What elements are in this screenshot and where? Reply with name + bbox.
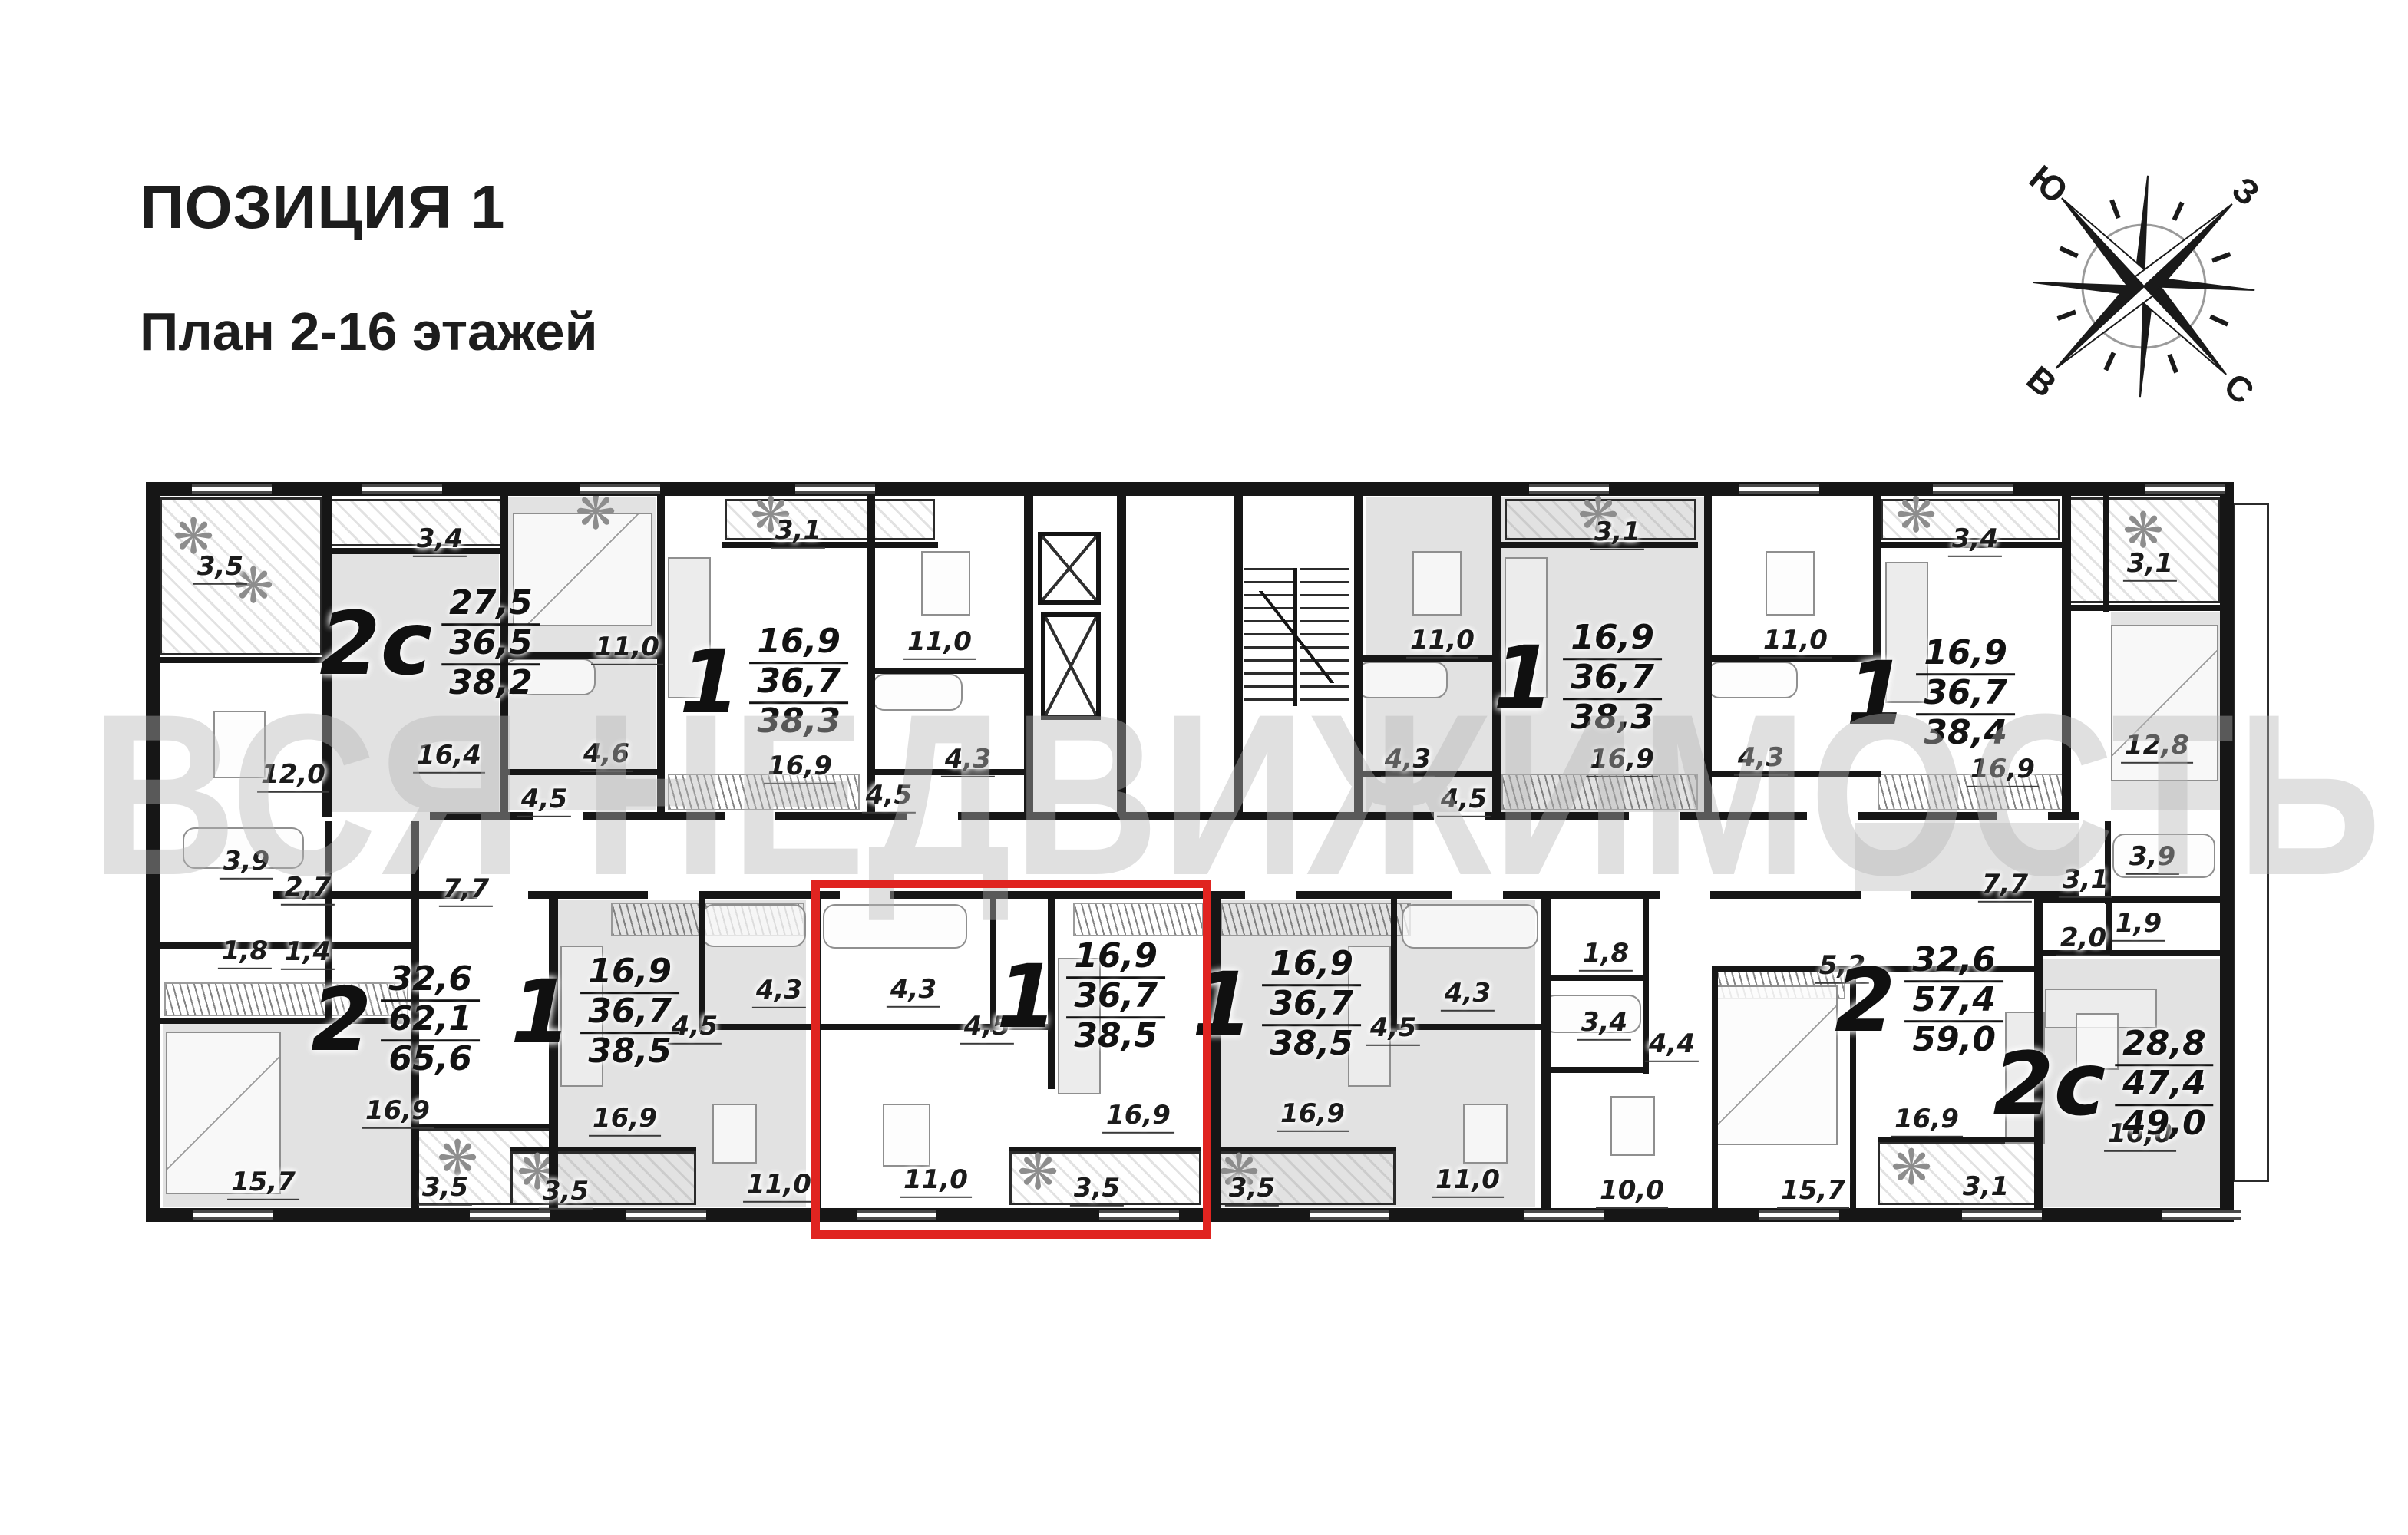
apartment-area-value: 38,3 xyxy=(1563,701,1662,738)
window-icon xyxy=(1962,1210,2042,1220)
wall xyxy=(1704,771,1881,777)
apartment-label: 116,936,738,5 xyxy=(510,954,679,1072)
room-area-label: 1,8 xyxy=(1579,938,1633,972)
apartment-label: 2с28,847,449,0 xyxy=(1993,1026,2213,1144)
wall xyxy=(722,542,938,548)
table-icon xyxy=(1412,551,1462,616)
room-area-label: 12,0 xyxy=(257,759,329,793)
elevator-shaft-icon xyxy=(1038,532,1101,605)
table-icon xyxy=(1463,1104,1508,1164)
apartment-area-value: 32,6 xyxy=(1904,942,2003,982)
table-icon xyxy=(921,551,970,616)
room-area-label: 4,5 xyxy=(1437,784,1491,817)
wardrobe-hatch xyxy=(1221,903,1411,936)
room-area-label: 2,7 xyxy=(281,872,335,906)
apartment-area-value: 62,1 xyxy=(381,1002,480,1041)
room-area-label: 11,0 xyxy=(1432,1164,1504,1198)
room-area-label: 3,5 xyxy=(539,1176,593,1210)
wall xyxy=(867,668,1033,674)
room-area-label: 16,9 xyxy=(362,1095,434,1129)
floor-plan-page: ПОЗИЦИЯ 1 План 2-16 этажей Ю xyxy=(0,0,2408,1535)
room-area-label: 4,5 xyxy=(862,780,916,814)
window-icon xyxy=(795,484,875,494)
apartment-type: 2 xyxy=(1835,965,1895,1039)
apartment-area-value: 47,4 xyxy=(2115,1066,2214,1106)
apartment-areas: 16,936,738,3 xyxy=(749,624,848,742)
apartment-label: 116,936,738,4 xyxy=(1846,635,2015,754)
door-opening xyxy=(1997,812,2048,820)
room-area-label: 4,3 xyxy=(1734,742,1788,776)
room-area-label: 16,9 xyxy=(1277,1098,1349,1132)
room-area-label: 10,0 xyxy=(1596,1175,1668,1209)
room-area-label: 16,9 xyxy=(589,1103,661,1137)
apartment-type: 1 xyxy=(1846,658,1907,732)
window-icon xyxy=(2145,484,2225,494)
apartment-type: 2с xyxy=(1993,1048,2106,1123)
room-area-label: 16,9 xyxy=(1891,1104,1963,1137)
bathtub-icon xyxy=(1357,662,1448,698)
apartment-area-value: 16,9 xyxy=(1563,620,1662,660)
wall xyxy=(510,1147,696,1151)
apartment-area-value: 38,5 xyxy=(1262,1027,1361,1065)
room-area-label: 16,9 xyxy=(1967,754,2039,787)
door-opening xyxy=(1629,812,1680,820)
wall xyxy=(1541,975,1649,981)
apartment-area-value: 27,5 xyxy=(441,586,540,626)
room-area-label: 11,0 xyxy=(903,626,976,660)
door-opening xyxy=(648,891,699,899)
door-opening xyxy=(1452,891,1503,899)
wall xyxy=(2062,605,2228,611)
window-icon xyxy=(1524,1210,1604,1220)
bathtub-icon xyxy=(872,674,963,711)
room-area-label: 4,5 xyxy=(1366,1012,1420,1046)
wall xyxy=(146,482,2234,496)
plant-icon: ❋ xyxy=(1891,1140,1932,1197)
room-area-label: 3,5 xyxy=(1225,1173,1279,1207)
apartment-area-value: 57,4 xyxy=(1904,982,2003,1022)
highlighted-apartment-box[interactable] xyxy=(811,880,1211,1239)
apartment-label: 232,657,459,0 xyxy=(1835,942,2003,1061)
window-icon xyxy=(580,484,660,494)
wardrobe-hatch xyxy=(1501,774,1698,810)
window-icon xyxy=(470,1210,550,1220)
door-opening xyxy=(1861,891,1911,899)
apartment-areas: 28,847,449,0 xyxy=(2115,1026,2214,1144)
room-area-label: 12,8 xyxy=(2121,730,2193,764)
bed-icon xyxy=(1716,985,1838,1145)
apartment-areas: 32,657,459,0 xyxy=(1904,942,2003,1061)
room-area-label: 3,1 xyxy=(771,515,825,549)
apartment-areas: 16,936,738,4 xyxy=(1916,635,2015,754)
apartment-area-value: 38,4 xyxy=(1916,716,2015,754)
window-icon xyxy=(362,484,442,494)
apartment-label: 232,662,165,6 xyxy=(311,962,480,1080)
apartment-area-value: 16,9 xyxy=(749,624,848,664)
apartment-area-value: 59,0 xyxy=(1904,1023,2003,1061)
room-area-label: 11,0 xyxy=(1406,625,1478,659)
apartment-areas: 16,936,738,3 xyxy=(1563,620,1662,738)
window-icon xyxy=(1933,484,2013,494)
window-icon xyxy=(626,1210,706,1220)
apartment-type: 1 xyxy=(1493,642,1554,717)
bathtub-icon xyxy=(1707,662,1798,698)
room-area-label: 1,9 xyxy=(2112,908,2165,942)
side-bay xyxy=(2232,503,2269,1182)
room-area-label: 1,8 xyxy=(218,936,272,969)
room-area-label: 16,9 xyxy=(1586,744,1658,777)
room-area-label: 4,5 xyxy=(517,784,571,817)
room-area-label: 15,7 xyxy=(227,1167,299,1200)
table-icon xyxy=(712,1104,757,1164)
compass-letter-east: В xyxy=(2020,358,2065,404)
room-area-label: 4,3 xyxy=(1381,744,1435,777)
compass-letter-west: З xyxy=(2225,169,2268,213)
elevator-shaft-icon xyxy=(1041,612,1101,720)
wall xyxy=(1541,899,1551,1208)
room-area-label: 3,1 xyxy=(2123,548,2177,582)
door-opening xyxy=(1245,891,1296,899)
room-area-label: 7,7 xyxy=(1978,869,2032,903)
room-area-label: 4,6 xyxy=(580,738,633,772)
door-opening xyxy=(1807,812,1858,820)
room-area-label: 4,3 xyxy=(1441,978,1495,1012)
room-area-label: 3,1 xyxy=(2059,864,2112,898)
room-area-label: 11,0 xyxy=(743,1169,815,1203)
room-area-label: 3,5 xyxy=(418,1172,472,1206)
wall xyxy=(160,657,324,663)
room-area-label: 11,0 xyxy=(1759,625,1832,659)
room-area-label: 4,3 xyxy=(941,744,995,777)
door-opening xyxy=(725,812,775,820)
wall xyxy=(1234,496,1243,820)
wall xyxy=(1541,1067,1649,1073)
room-area-label: 3,1 xyxy=(1590,517,1644,550)
room-area-label: 16,4 xyxy=(413,740,485,774)
window-icon xyxy=(193,1210,273,1220)
apartment-label: 116,936,738,5 xyxy=(1192,946,1361,1065)
apartment-areas: 32,662,165,6 xyxy=(381,962,480,1080)
plant-icon: ❋ xyxy=(1895,487,1937,544)
apartment-type: 1 xyxy=(679,646,740,721)
apartment-areas: 16,936,738,5 xyxy=(1262,946,1361,1065)
apartment-type: 1 xyxy=(510,976,571,1051)
window-icon xyxy=(1529,484,1609,494)
wall xyxy=(2103,496,2109,612)
apartment-label: 2с27,536,538,2 xyxy=(319,586,540,704)
apartment-area-value: 28,8 xyxy=(2115,1026,2214,1066)
apartment-area-value: 32,6 xyxy=(381,962,480,1002)
wall xyxy=(1712,966,1718,1208)
window-icon xyxy=(1310,1210,1389,1220)
room-area-label: 7,7 xyxy=(439,873,493,907)
room-area-label: 11,0 xyxy=(591,632,663,665)
apartment-area-value: 36,5 xyxy=(441,626,540,665)
apartment-area-value: 49,0 xyxy=(2115,1107,2214,1144)
apartment-area-value: 38,3 xyxy=(749,705,848,742)
apartment-label: 116,936,738,3 xyxy=(1493,620,1662,738)
room-area-label: 3,5 xyxy=(193,551,247,585)
apartment-type: 2с xyxy=(319,608,432,682)
compass-rose-icon: Ю З В С xyxy=(1979,121,2309,451)
apartment-area-value: 16,9 xyxy=(1262,946,1361,986)
room-area-label: 4,4 xyxy=(1645,1028,1699,1062)
bathtub-icon xyxy=(702,904,806,947)
apartment-tint xyxy=(1855,823,2079,891)
apartment-area-value: 16,9 xyxy=(1916,635,2015,675)
table-icon xyxy=(1766,551,1815,616)
wall xyxy=(415,1124,551,1128)
apartment-area-value: 36,7 xyxy=(749,664,848,704)
door-opening xyxy=(1660,891,1710,899)
wall xyxy=(2220,482,2234,1222)
room-area-label: 15,7 xyxy=(1777,1175,1849,1209)
apartment-area-value: 38,5 xyxy=(580,1035,679,1072)
apartment-area-value: 36,7 xyxy=(1563,660,1662,700)
room-area-label: 4,3 xyxy=(752,975,806,1008)
apartment-area-value: 65,6 xyxy=(381,1042,480,1080)
room-area-label: 3,9 xyxy=(220,846,273,880)
apartment-area-value: 36,7 xyxy=(1262,986,1361,1026)
apartment-area-value: 36,7 xyxy=(1916,675,2015,715)
table-icon xyxy=(1610,1096,1655,1156)
window-icon xyxy=(1739,484,1819,494)
window-icon xyxy=(2162,1210,2241,1220)
window-icon xyxy=(192,484,272,494)
apartment-area-value: 38,2 xyxy=(441,666,540,704)
apartment-type: 2 xyxy=(311,984,372,1058)
room-area-label: 3,1 xyxy=(1959,1171,2013,1205)
window-icon xyxy=(1759,1210,1839,1220)
apartment-label: 116,936,738,3 xyxy=(679,624,848,742)
room-area-label: 3,4 xyxy=(1948,523,2002,557)
apartment-areas: 16,936,738,5 xyxy=(580,954,679,1072)
wall xyxy=(146,482,160,1222)
room-area-label: 2,0 xyxy=(2056,923,2110,956)
apartment-area-value: 16,9 xyxy=(580,954,679,994)
room-area-label: 3,4 xyxy=(1577,1007,1631,1041)
room-area-label: 3,4 xyxy=(413,523,467,557)
room-area-label: 16,9 xyxy=(764,751,836,784)
bathtub-icon xyxy=(1402,904,1538,949)
wall xyxy=(1117,496,1126,820)
apartment-area-value: 36,7 xyxy=(580,994,679,1034)
room-area-label: 3,9 xyxy=(2126,841,2179,875)
wall xyxy=(1213,1147,1396,1151)
apartment-areas: 27,536,538,2 xyxy=(441,586,540,704)
